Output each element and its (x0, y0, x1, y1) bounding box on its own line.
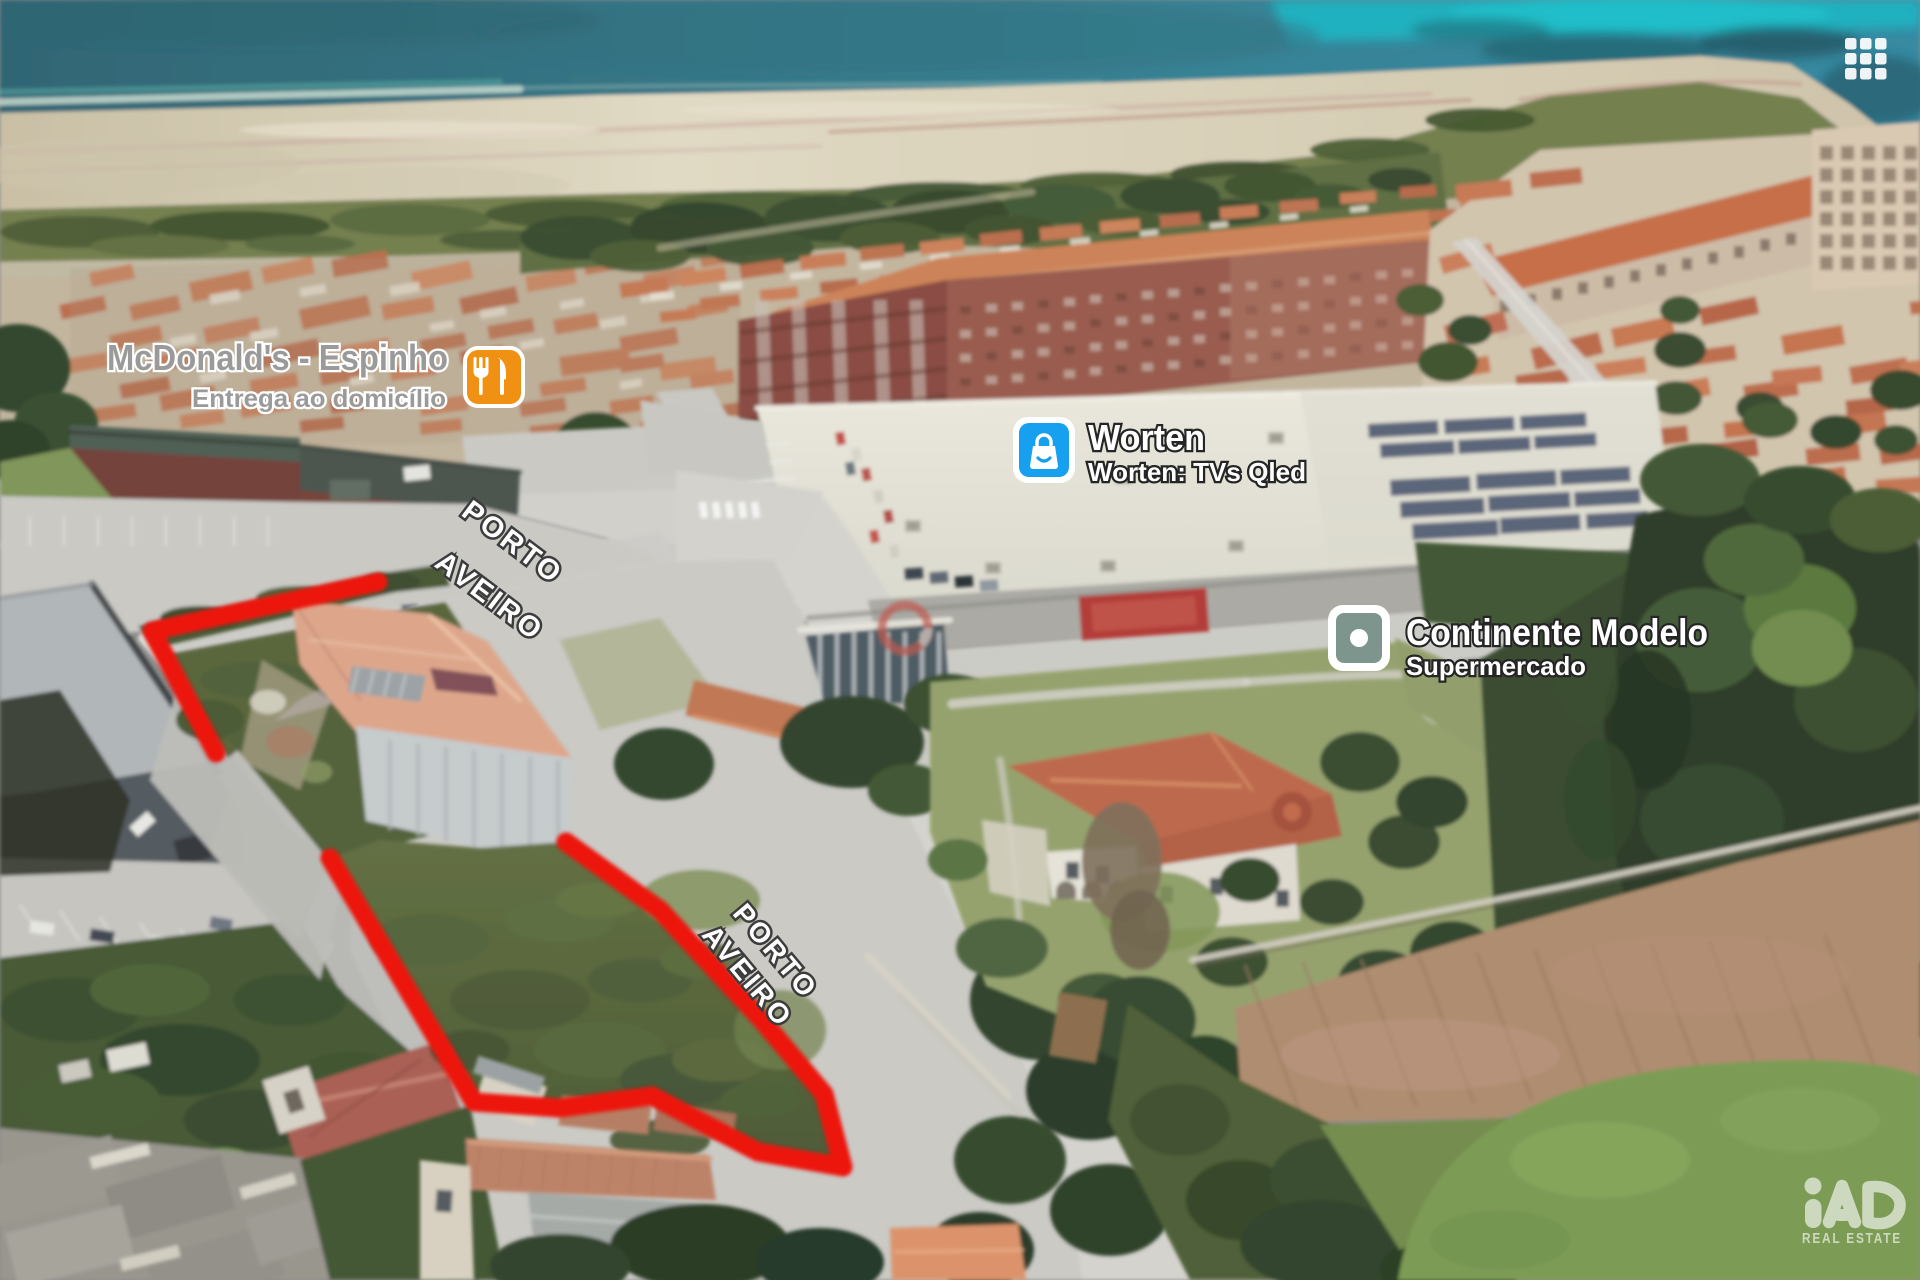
svg-text:Worten: Worten (1088, 417, 1205, 458)
svg-text:Supermercado: Supermercado (1406, 651, 1586, 681)
svg-text:REAL ESTATE: REAL ESTATE (1802, 1231, 1902, 1247)
svg-text:Continente Modelo: Continente Modelo (1406, 612, 1708, 653)
svg-text:McDonald's - Espinho: McDonald's - Espinho (107, 337, 448, 378)
svg-text:Worten: TVs Qled: Worten: TVs Qled (1088, 457, 1306, 487)
svg-text:Entrega ao domicílio: Entrega ao domicílio (192, 385, 446, 413)
